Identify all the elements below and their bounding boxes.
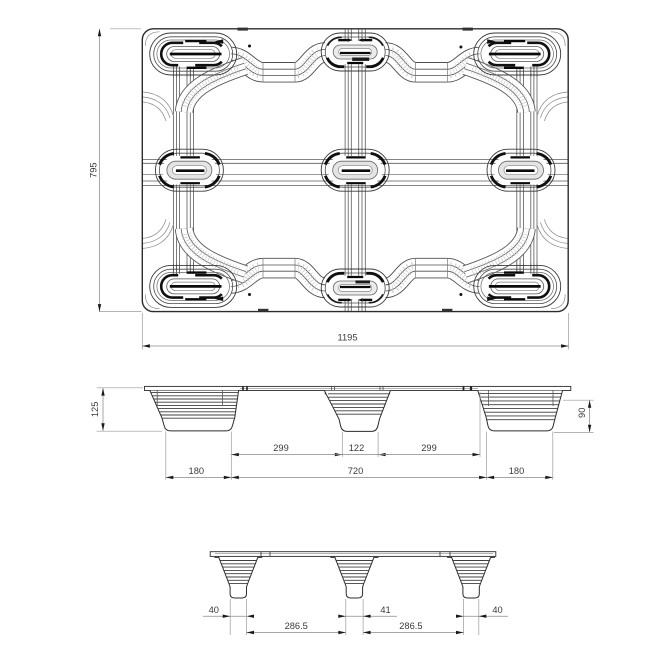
svg-text:180: 180 — [189, 466, 205, 476]
svg-text:125: 125 — [90, 402, 100, 418]
svg-text:286.5: 286.5 — [285, 621, 308, 631]
svg-text:40: 40 — [209, 605, 219, 615]
svg-text:40: 40 — [492, 605, 502, 615]
svg-text:41: 41 — [380, 605, 390, 615]
svg-text:180: 180 — [509, 466, 525, 476]
svg-text:720: 720 — [348, 466, 364, 476]
svg-text:795: 795 — [89, 162, 99, 178]
svg-text:286.5: 286.5 — [399, 621, 422, 631]
svg-text:299: 299 — [273, 443, 289, 453]
svg-text:122: 122 — [349, 443, 365, 453]
svg-text:90: 90 — [577, 408, 587, 418]
svg-text:299: 299 — [421, 443, 437, 453]
svg-text:1195: 1195 — [338, 333, 358, 343]
